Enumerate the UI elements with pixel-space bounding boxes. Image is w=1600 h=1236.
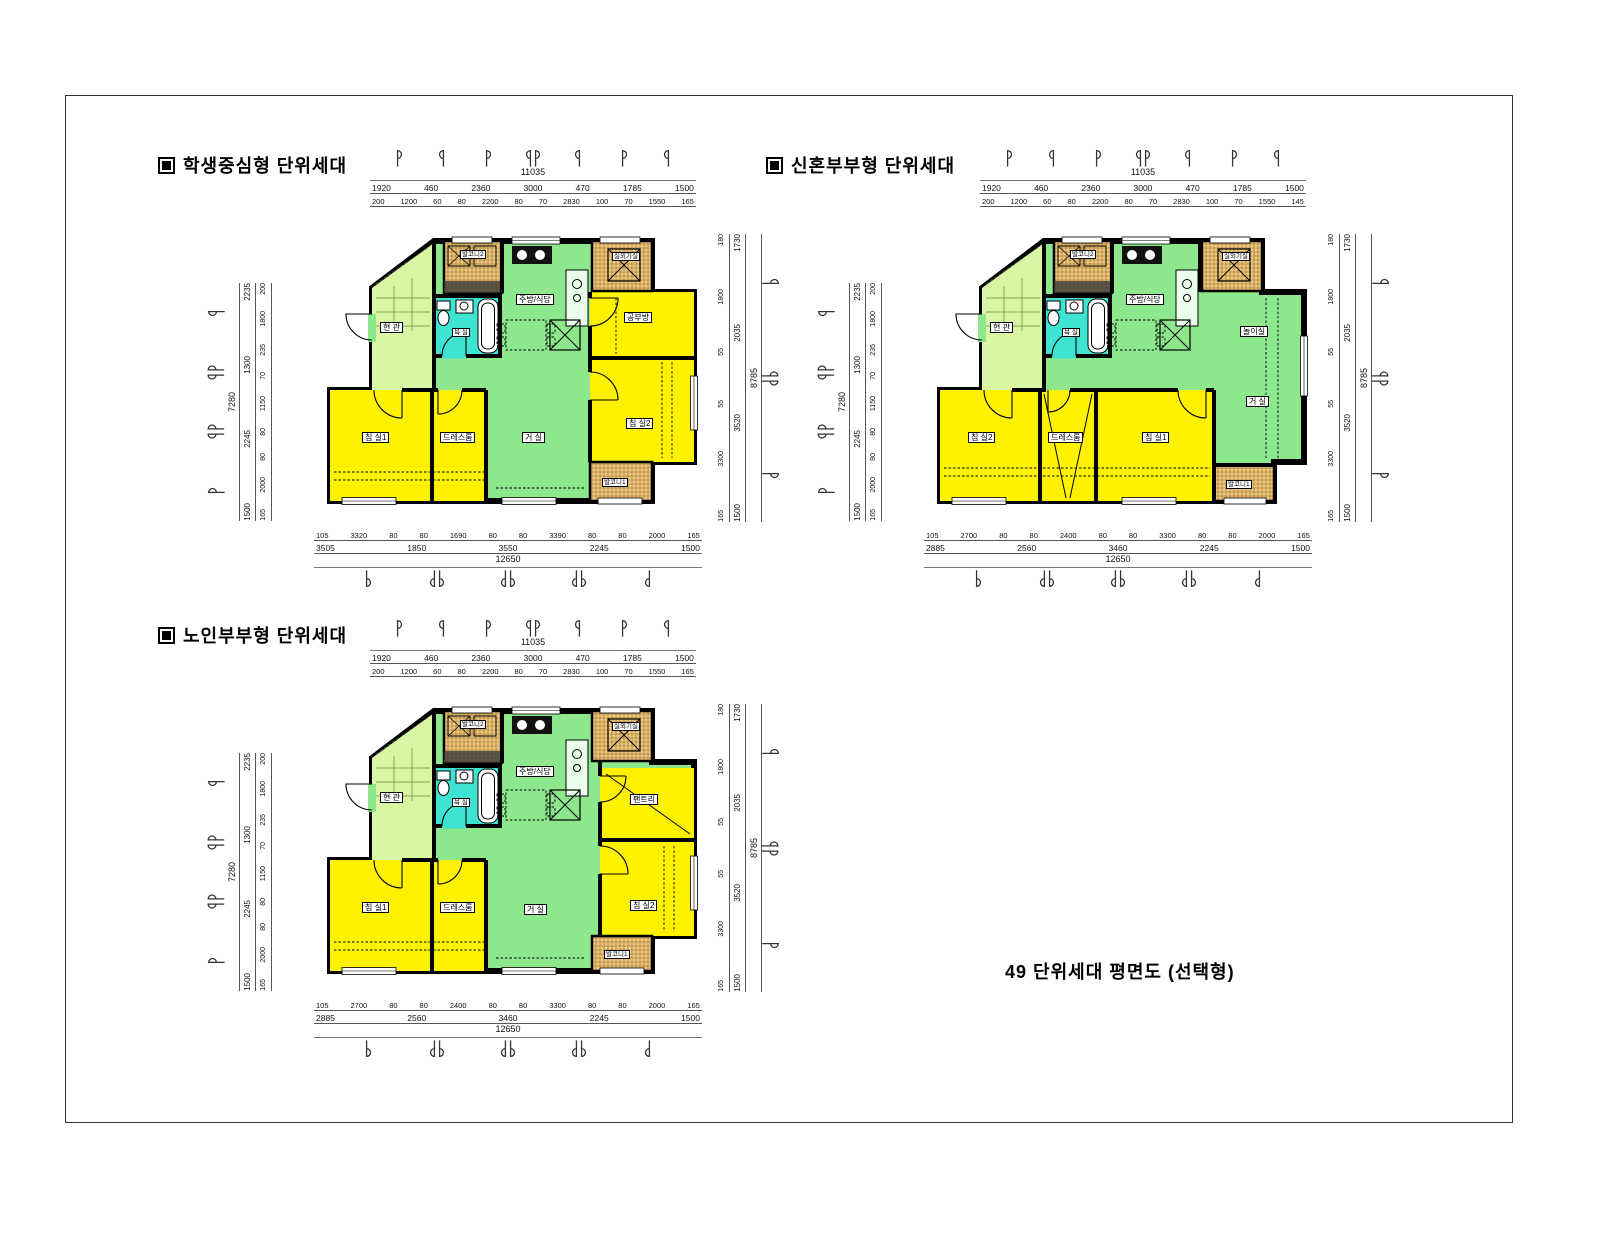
dim-value: 80	[515, 667, 523, 676]
floorplan-drawing	[316, 236, 700, 506]
dim-col: 1730203535201500	[1340, 234, 1356, 522]
grid-marker-icon	[643, 1040, 654, 1059]
grid-marker-icon	[762, 841, 781, 855]
dim-row: 28852560346022451500	[314, 1011, 702, 1024]
room-label-dress: 드레스룸	[440, 432, 475, 443]
dim-value: 1550	[1259, 197, 1276, 206]
grid-marker-icon	[526, 618, 540, 637]
dim-total: 7280	[834, 283, 850, 521]
room-label-living: 거 실	[522, 432, 545, 443]
dim-total: 12650	[314, 554, 702, 568]
dim-value: 3460	[1109, 543, 1128, 553]
dim-value: 80	[1068, 197, 1076, 206]
room-label-kitchen: 주방/식당	[516, 294, 554, 305]
dim-value: 80	[489, 531, 497, 540]
dim-value: 1920	[372, 183, 391, 193]
grid-marker-icon	[762, 277, 781, 288]
plan-title-newlywed: 신혼부부형 단위세대	[766, 152, 955, 178]
dim-value: 80	[1099, 531, 1107, 540]
grid-marker-icon	[1372, 469, 1391, 480]
dim-value: 3550	[499, 543, 518, 553]
grid-marker-icon	[1183, 148, 1194, 167]
dim-value: 1920	[982, 183, 1001, 193]
dim-value: 200	[372, 667, 385, 676]
grid-marker-icon	[206, 365, 225, 379]
room-label-balcony2: 발코니2	[460, 250, 486, 259]
dim-value: 70	[539, 667, 547, 676]
dim-value: 165	[687, 1001, 700, 1010]
room-label-dress: 드레스룸	[440, 902, 475, 913]
room-label-balcony1: 발코니1	[1226, 480, 1252, 489]
dim-chain-right: 180180055553300165 1730203535201500 8785	[714, 234, 780, 522]
dim-col: 180180055553300165	[1324, 234, 1340, 522]
room-label-bed2: 침 실2	[968, 432, 995, 443]
grid-marker-icon	[816, 365, 835, 379]
grid-marker-icon	[430, 570, 444, 589]
dim-row: 20012006080220080702830100701550165	[370, 194, 696, 207]
grid-marker-row	[314, 568, 702, 589]
dim-chain-left: 7280 2235130022451500 200180023570115080…	[206, 753, 272, 991]
floorplan-elderly: 발코니2 실외기실 주방/식당 현 관 욕 실 팬트리 침 실2 거 실 드레스…	[316, 706, 700, 976]
dim-value: 165	[681, 667, 694, 676]
dim-row: 35051850355022451500	[314, 541, 702, 554]
grid-marker-icon	[662, 148, 673, 167]
dim-value: 60	[433, 667, 441, 676]
dim-chain-right: 180180055553300165 1730203535201500 8785	[714, 704, 780, 992]
dim-value: 3460	[499, 1013, 518, 1023]
dim-value: 3300	[549, 1001, 566, 1010]
dim-value: 2200	[482, 197, 499, 206]
dim-value: 3320	[351, 531, 368, 540]
dim-value: 80	[458, 667, 466, 676]
grid-marker-icon	[437, 618, 448, 637]
grid-marker-icon	[1003, 148, 1014, 167]
grid-marker-icon	[816, 486, 835, 497]
dim-value: 2830	[563, 197, 580, 206]
grid-marker-icon	[572, 1040, 586, 1059]
dim-value: 70	[624, 197, 632, 206]
grid-marker-icon	[573, 148, 584, 167]
dim-value: 70	[1234, 197, 1242, 206]
dim-row: 28852560346022451500	[924, 541, 1312, 554]
grid-marker-icon	[206, 956, 225, 967]
dim-row: 20012006080220080702830100701550145	[980, 194, 1306, 207]
room-label-bed1: 침 실1	[1142, 432, 1169, 443]
dim-value: 1550	[649, 197, 666, 206]
grid-marker-icon	[1272, 148, 1283, 167]
dim-value: 3000	[524, 653, 543, 663]
grid-marker-row	[370, 146, 696, 167]
dim-value: 80	[519, 1001, 527, 1010]
dim-value: 80	[389, 1001, 397, 1010]
drawing-caption: 49 단위세대 평면도 (선택형)	[1005, 958, 1235, 984]
dim-col: 2235130022451500	[850, 283, 866, 521]
section-bullet-icon	[766, 157, 783, 174]
dim-value: 80	[1125, 197, 1133, 206]
dim-value: 60	[1043, 197, 1051, 206]
dim-value: 1500	[1291, 543, 1310, 553]
dim-row: 1053320808016908080339080802000165	[314, 528, 702, 541]
dim-value: 2200	[482, 667, 499, 676]
floorplan-drawing	[316, 706, 700, 976]
dim-value: 200	[982, 197, 995, 206]
dim-value: 80	[420, 531, 428, 540]
grid-marker-col	[1372, 234, 1390, 522]
grid-marker-icon	[1228, 148, 1239, 167]
dim-total: 7280	[224, 753, 240, 991]
room-label-entrance: 현 관	[380, 792, 403, 803]
dim-value: 2200	[1092, 197, 1109, 206]
dim-value: 470	[576, 183, 590, 193]
dim-chain-top: 11035 19204602360300047017851500 2001200…	[370, 146, 696, 207]
room-label-balcony1: 발코니1	[604, 950, 630, 959]
dim-col: 2235130022451500	[240, 753, 256, 991]
dim-value: 80	[519, 531, 527, 540]
dim-col: 1730203535201500	[730, 234, 746, 522]
grid-marker-icon	[526, 148, 540, 167]
plan-title-text: 학생중심형 단위세대	[183, 152, 347, 178]
dim-row: 19204602360300047017851500	[370, 651, 696, 664]
floorplan-student: 발코니2 실외기실 주방/식당 현 관 욕 실 공부방 침 실2 거 실 드레스…	[316, 236, 700, 506]
dim-value: 2000	[649, 531, 666, 540]
grid-marker-icon	[430, 1040, 444, 1059]
grid-marker-icon	[206, 895, 225, 909]
dim-value: 1500	[681, 1013, 700, 1023]
grid-marker-icon	[206, 425, 225, 439]
plan-title-elderly: 노인부부형 단위세대	[158, 622, 347, 648]
grid-marker-icon	[1372, 371, 1391, 385]
dim-value: 80	[489, 1001, 497, 1010]
dim-value: 165	[681, 197, 694, 206]
room-label-bath: 욕 실	[452, 328, 470, 337]
dim-row: 19204602360300047017851500	[980, 181, 1306, 194]
grid-marker-icon	[762, 371, 781, 385]
grid-marker-icon	[482, 148, 493, 167]
drawing-sheet: 학생중심형 단위세대 11035 19204602360300047017851…	[0, 0, 1600, 1236]
dim-value: 470	[1186, 183, 1200, 193]
dim-value: 70	[539, 197, 547, 206]
grid-marker-icon	[618, 618, 629, 637]
dim-value: 100	[1206, 197, 1219, 206]
room-label-ac-unit: 실외기실	[612, 252, 640, 261]
dim-chain-bottom: 1053320808016908080339080802000165 35051…	[314, 528, 702, 589]
dim-value: 1200	[1011, 197, 1028, 206]
grid-marker-icon	[762, 939, 781, 950]
dim-row: 20012006080220080702830100701550165	[370, 664, 696, 677]
grid-marker-icon	[206, 777, 225, 788]
floorplan-newlywed: 발코니2 실외기실 주방/식당 현 관 욕 실 놀이실 거 실 침 실2 드레스…	[926, 236, 1310, 506]
dim-value: 2700	[351, 1001, 368, 1010]
dim-value: 105	[316, 531, 329, 540]
room-label-ac-unit: 실외기실	[612, 722, 640, 731]
dim-chain-bottom: 1052700808024008080330080802000165 28852…	[314, 998, 702, 1059]
room-label-bath: 욕 실	[1062, 328, 1080, 337]
dim-value: 3000	[524, 183, 543, 193]
grid-marker-icon	[437, 148, 448, 167]
grid-marker-icon	[816, 425, 835, 439]
dim-value: 1785	[623, 653, 642, 663]
room-label-entrance: 현 관	[380, 322, 403, 333]
grid-marker-icon	[362, 570, 373, 589]
dim-value: 1920	[372, 653, 391, 663]
grid-marker-icon	[618, 148, 629, 167]
dim-value: 2360	[471, 653, 490, 663]
dim-value: 2245	[590, 543, 609, 553]
dim-value: 2245	[1200, 543, 1219, 553]
grid-marker-icon	[816, 307, 835, 318]
dim-value: 80	[588, 1001, 596, 1010]
dim-chain-right: 180180055553300165 1730203535201500 8785	[1324, 234, 1390, 522]
room-label-balcony1: 발코니1	[602, 478, 628, 487]
dim-value: 105	[926, 531, 939, 540]
dim-value: 80	[515, 197, 523, 206]
grid-marker-icon	[501, 1040, 515, 1059]
dim-value: 2400	[450, 1001, 467, 1010]
dim-value: 1690	[450, 531, 467, 540]
dim-col: 180180055553300165	[714, 234, 730, 522]
grid-marker-icon	[972, 570, 983, 589]
dim-total: 8785	[746, 234, 762, 522]
grid-marker-col	[816, 283, 834, 521]
dim-total: 11035	[370, 167, 696, 181]
plan-title-text: 노인부부형 단위세대	[183, 622, 347, 648]
dim-value: 460	[424, 183, 438, 193]
section-bullet-icon	[158, 157, 175, 174]
grid-marker-col	[762, 234, 780, 522]
grid-marker-icon	[482, 618, 493, 637]
dim-value: 80	[420, 1001, 428, 1010]
grid-marker-row	[924, 568, 1312, 589]
dim-value: 460	[1034, 183, 1048, 193]
dim-col: 200180023570115080802000165	[256, 283, 272, 521]
dim-value: 2000	[1259, 531, 1276, 540]
grid-marker-icon	[501, 570, 515, 589]
grid-marker-icon	[393, 148, 404, 167]
room-label-kitchen: 주방/식당	[516, 766, 554, 777]
grid-marker-icon	[1047, 148, 1058, 167]
dim-value: 145	[1291, 197, 1304, 206]
dim-row: 1052700808024008080330080802000165	[924, 528, 1312, 541]
dim-value: 1200	[401, 197, 418, 206]
grid-marker-icon	[362, 1040, 373, 1059]
dim-chain-left: 7280 2235130022451500 200180023570115080…	[206, 283, 272, 521]
grid-marker-col	[762, 704, 780, 992]
dim-value: 80	[999, 531, 1007, 540]
dim-value: 1550	[649, 667, 666, 676]
room-label-living: 거 실	[524, 904, 547, 915]
dim-value: 165	[1297, 531, 1310, 540]
plan-title-student: 학생중심형 단위세대	[158, 152, 347, 178]
dim-value: 2000	[649, 1001, 666, 1010]
grid-marker-icon	[1040, 570, 1054, 589]
room-label-pantry: 팬트리	[630, 794, 658, 805]
dim-value: 200	[372, 197, 385, 206]
dim-value: 2360	[471, 183, 490, 193]
grid-marker-col	[206, 753, 224, 991]
dim-value: 2830	[563, 667, 580, 676]
grid-marker-icon	[762, 747, 781, 758]
dim-value: 80	[1228, 531, 1236, 540]
dim-value: 1500	[681, 543, 700, 553]
grid-marker-row	[314, 1038, 702, 1059]
grid-marker-icon	[762, 469, 781, 480]
grid-marker-icon	[206, 486, 225, 497]
dim-value: 80	[458, 197, 466, 206]
room-label-dress: 드레스룸	[1048, 432, 1083, 443]
room-label-kitchen: 주방/식당	[1126, 294, 1164, 305]
dim-value: 100	[596, 667, 609, 676]
dim-value: 80	[389, 531, 397, 540]
dim-chain-top: 11035 19204602360300047017851500 2001200…	[980, 146, 1306, 207]
dim-value: 80	[1129, 531, 1137, 540]
room-label-bed1: 침 실1	[362, 432, 389, 443]
dim-value: 70	[1149, 197, 1157, 206]
grid-marker-icon	[206, 307, 225, 318]
grid-marker-icon	[1111, 570, 1125, 589]
room-label-balcony2: 발코니2	[1070, 250, 1096, 259]
dim-col: 200180023570115080802000165	[256, 753, 272, 991]
room-label-bed2: 침 실2	[630, 900, 657, 911]
dim-value: 1785	[1233, 183, 1252, 193]
dim-value: 105	[316, 1001, 329, 1010]
room-label-balcony2: 발코니2	[460, 720, 486, 729]
floorplan-drawing	[926, 236, 1310, 506]
dim-total: 11035	[370, 637, 696, 651]
grid-marker-row	[980, 146, 1306, 167]
dim-value: 2885	[316, 1013, 335, 1023]
dim-value: 80	[1198, 531, 1206, 540]
dim-value: 470	[576, 653, 590, 663]
grid-marker-row	[370, 616, 696, 637]
room-label-play: 놀이실	[1240, 326, 1268, 337]
dim-value: 80	[618, 531, 626, 540]
dim-total: 12650	[924, 554, 1312, 568]
grid-marker-icon	[643, 570, 654, 589]
dim-total: 8785	[746, 704, 762, 992]
dim-value: 2700	[961, 531, 978, 540]
dim-value: 3300	[1159, 531, 1176, 540]
dim-value: 3505	[316, 543, 335, 553]
dim-value: 1200	[401, 667, 418, 676]
dim-value: 2830	[1173, 197, 1190, 206]
dim-value: 3390	[549, 531, 566, 540]
dim-value: 60	[433, 197, 441, 206]
grid-marker-icon	[1182, 570, 1196, 589]
dim-value: 1785	[623, 183, 642, 193]
dim-total: 12650	[314, 1024, 702, 1038]
dim-value: 165	[687, 531, 700, 540]
grid-marker-icon	[1136, 148, 1150, 167]
dim-col: 1730203535201500	[730, 704, 746, 992]
dim-chain-top: 11035 19204602360300047017851500 2001200…	[370, 616, 696, 677]
room-label-entrance: 현 관	[990, 322, 1013, 333]
dim-value: 70	[624, 667, 632, 676]
dim-total: 7280	[224, 283, 240, 521]
dim-value: 460	[424, 653, 438, 663]
dim-value: 3000	[1134, 183, 1153, 193]
dim-value: 1850	[407, 543, 426, 553]
dim-col: 200180023570115080802000165	[866, 283, 882, 521]
dim-value: 100	[596, 197, 609, 206]
dim-value: 80	[1030, 531, 1038, 540]
dim-row: 19204602360300047017851500	[370, 181, 696, 194]
dim-value: 80	[588, 531, 596, 540]
grid-marker-icon	[573, 618, 584, 637]
dim-chain-bottom: 1052700808024008080330080802000165 28852…	[924, 528, 1312, 589]
room-label-ac-unit: 실외기실	[1222, 252, 1250, 261]
room-label-study: 공부방	[624, 312, 652, 323]
dim-col: 2235130022451500	[240, 283, 256, 521]
grid-marker-col	[206, 283, 224, 521]
grid-marker-icon	[1372, 277, 1391, 288]
grid-marker-icon	[1253, 570, 1264, 589]
dim-value: 2360	[1081, 183, 1100, 193]
room-label-bath: 욕 실	[452, 798, 470, 807]
dim-total: 8785	[1356, 234, 1372, 522]
grid-marker-icon	[1092, 148, 1103, 167]
room-label-living: 거 실	[1246, 396, 1269, 407]
dim-total: 11035	[980, 167, 1306, 181]
dim-value: 80	[618, 1001, 626, 1010]
grid-marker-icon	[662, 618, 673, 637]
dim-value: 1500	[675, 183, 694, 193]
dim-value: 2560	[407, 1013, 426, 1023]
plan-title-text: 신혼부부형 단위세대	[791, 152, 955, 178]
dim-col: 180180055553300165	[714, 704, 730, 992]
grid-marker-icon	[393, 618, 404, 637]
dim-value: 2400	[1060, 531, 1077, 540]
dim-value: 2885	[926, 543, 945, 553]
room-label-bed1: 침 실1	[362, 902, 389, 913]
dim-value: 1500	[1285, 183, 1304, 193]
dim-value: 2560	[1017, 543, 1036, 553]
grid-marker-icon	[572, 570, 586, 589]
dim-chain-left: 7280 2235130022451500 200180023570115080…	[816, 283, 882, 521]
dim-value: 2245	[590, 1013, 609, 1023]
grid-marker-icon	[206, 835, 225, 849]
room-label-bed2: 침 실2	[626, 418, 653, 429]
dim-value: 1500	[675, 653, 694, 663]
dim-row: 1052700808024008080330080802000165	[314, 998, 702, 1011]
section-bullet-icon	[158, 627, 175, 644]
